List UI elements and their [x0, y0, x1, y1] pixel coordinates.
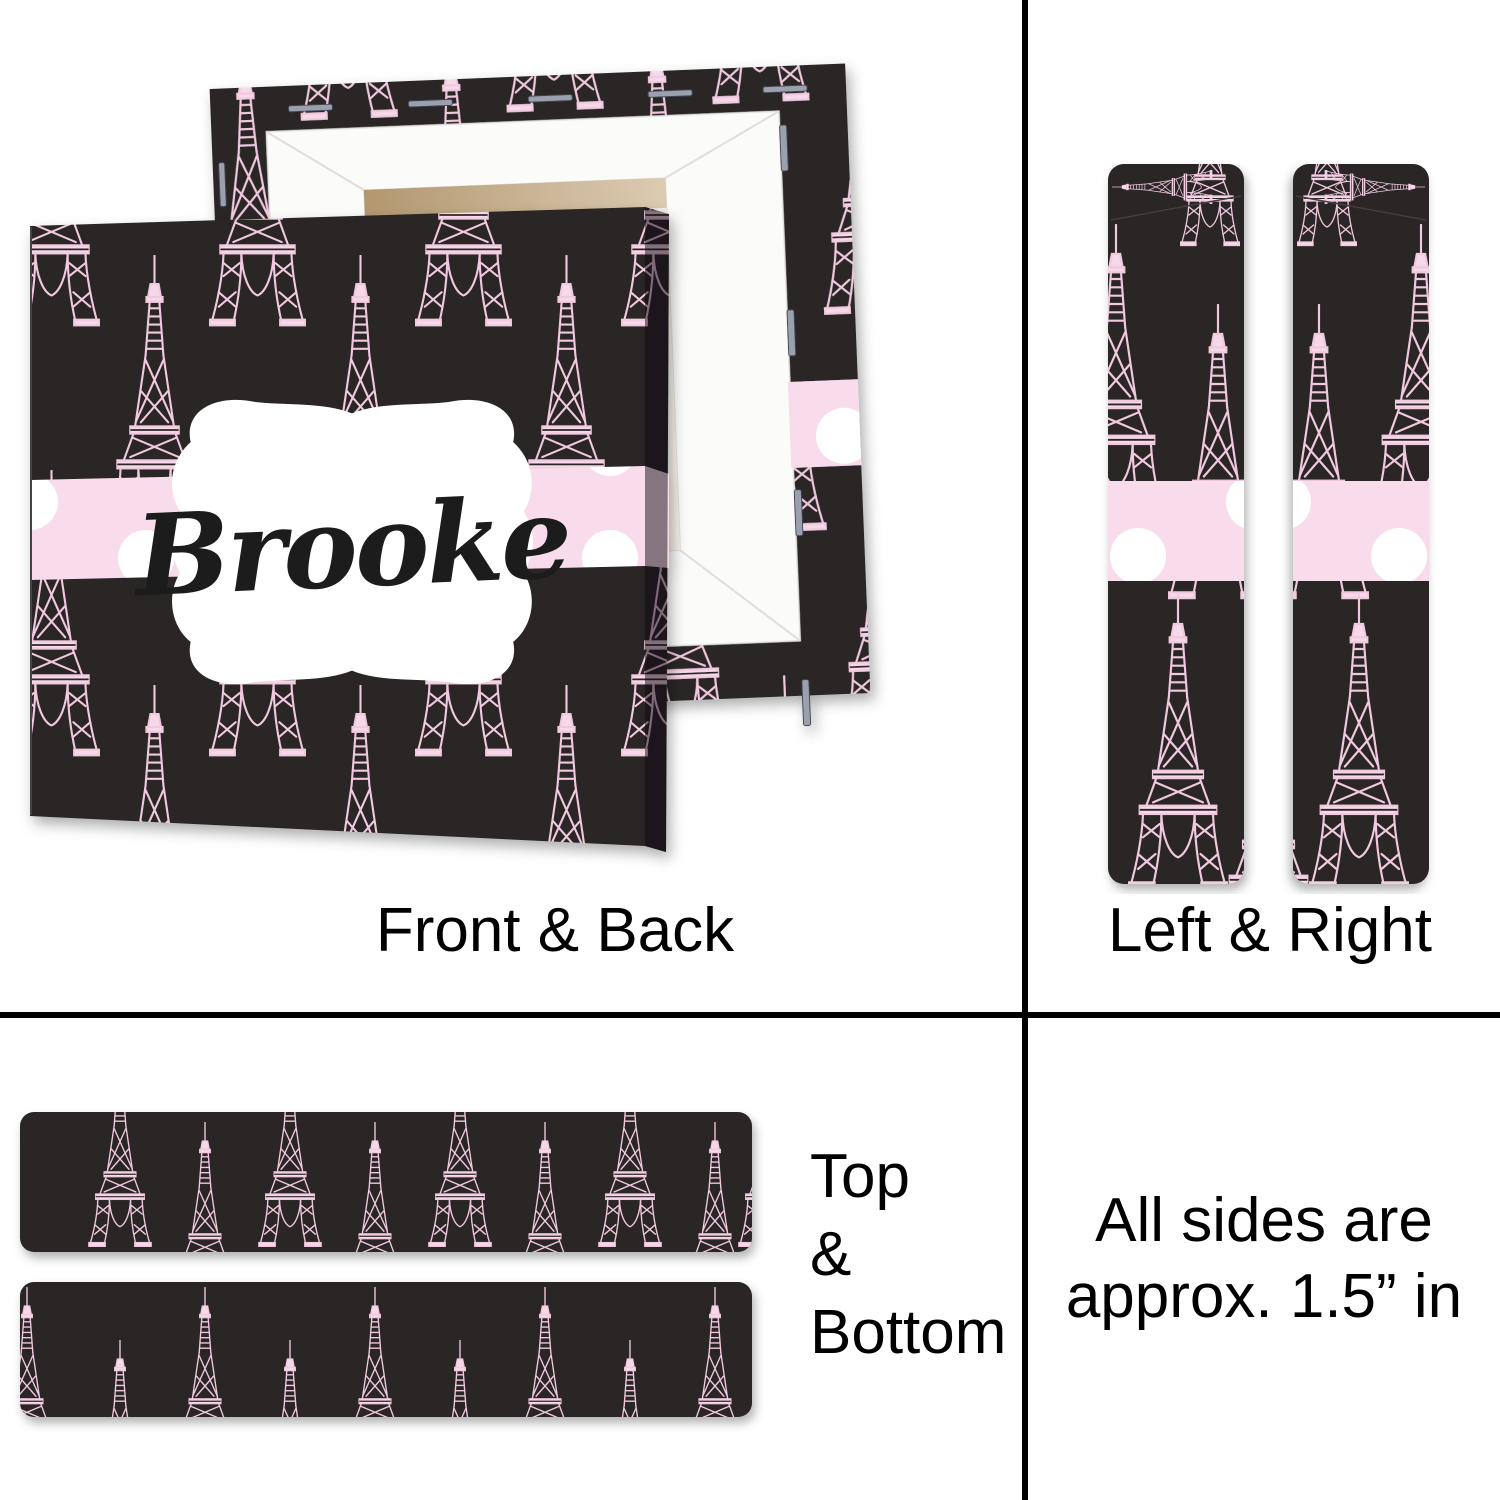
strip-right-side: [1220, 150, 1450, 894]
size-note-line1: All sides are: [1028, 1183, 1500, 1259]
personalized-name: Brooke: [129, 473, 571, 623]
staple-icon: [794, 490, 803, 536]
staple-icon: [528, 94, 572, 102]
size-note-line2: approx. 1.5” in: [1028, 1259, 1500, 1335]
divider-horizontal: [0, 1012, 1500, 1018]
left-right-label: Left & Right: [1108, 900, 1432, 962]
front-back-label: Front & Back: [376, 900, 734, 962]
strip-top-side: [20, 1080, 790, 1308]
top-bottom-strips-graphic: [0, 1080, 790, 1460]
ribbon-wrap-right-edge: [788, 379, 861, 468]
canvas-product-mockup: Brooke: [0, 0, 1500, 1500]
size-note: All sides are approx. 1.5” in: [1028, 1183, 1500, 1335]
front-back-canvas-graphic: Brooke: [0, 0, 1020, 1012]
staple-icon: [288, 104, 332, 112]
staple-icon: [648, 90, 692, 98]
canvas-front: Brooke: [30, 207, 669, 852]
staple-icon: [802, 679, 811, 725]
staple-icon: [763, 85, 807, 93]
top-bottom-label-line1: Top: [810, 1138, 1006, 1216]
top-bottom-label: Top & Bottom: [810, 1138, 1006, 1372]
strip-left-side: [1080, 150, 1317, 894]
side-face-shading: [645, 207, 669, 852]
left-right-strips-graphic: [1080, 150, 1450, 894]
staple-icon: [219, 162, 227, 206]
strip-bottom-side: [0, 1282, 752, 1460]
top-bottom-label-line2: &: [810, 1216, 1006, 1294]
staple-icon: [780, 125, 789, 171]
top-bottom-label-line3: Bottom: [810, 1294, 1006, 1372]
staple-icon: [787, 310, 796, 356]
staple-icon: [408, 99, 452, 107]
